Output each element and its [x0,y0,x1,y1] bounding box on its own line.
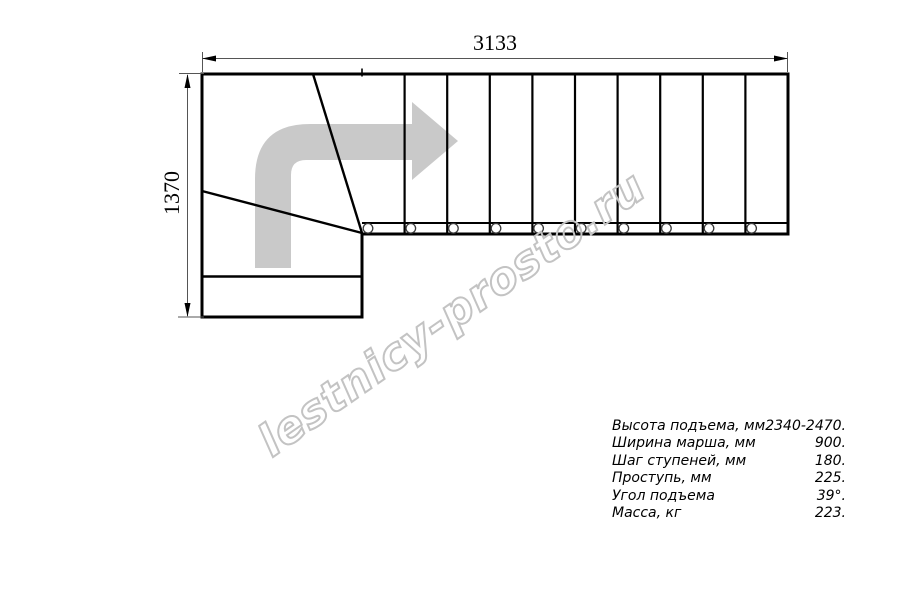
bolt-circle [449,224,459,234]
spec-row: Шаг ступеней, мм 180. [612,453,846,470]
spec-value: 39°. [817,488,846,505]
bolt-circle [704,224,714,234]
dimension-arrowhead [202,56,216,62]
spec-value: 180. [815,453,846,470]
spec-label: Шаг ступеней, мм [612,453,746,470]
spec-row: Проступь, мм 225. [612,470,846,487]
bolt-circle [747,224,757,234]
spec-row: Масса, кг 223. [612,505,846,522]
spec-row: Ширина марша, мм 900. [612,435,846,452]
spec-label: Ширина марша, мм [612,435,756,452]
spec-table: Высота подъема, мм 2340-2470. Ширина мар… [612,418,846,522]
spec-label: Высота подъема, мм [612,418,765,435]
spec-label: Масса, кг [612,505,681,522]
spec-value: 900. [815,435,846,452]
spec-row: Угол подъема 39°. [612,488,846,505]
spec-value: 225. [815,470,846,487]
spec-value: 2340-2470. [765,418,846,435]
top-dimension-label: 3133 [430,30,560,56]
spec-label: Проступь, мм [612,470,712,487]
bolt-circle [491,224,501,234]
spec-row: Высота подъема, мм 2340-2470. [612,418,846,435]
direction-arrow [255,102,458,268]
dimension-arrowhead [185,74,191,88]
bolt-circle [406,224,416,234]
spec-label: Угол подъема [612,488,715,505]
bolt-circle [363,224,373,234]
spec-value: 223. [815,505,846,522]
dimension-arrowhead [774,56,788,62]
bolt-circle [662,224,672,234]
left-dimension-label: 1370 [159,171,185,215]
dimension-arrowhead [185,303,191,317]
